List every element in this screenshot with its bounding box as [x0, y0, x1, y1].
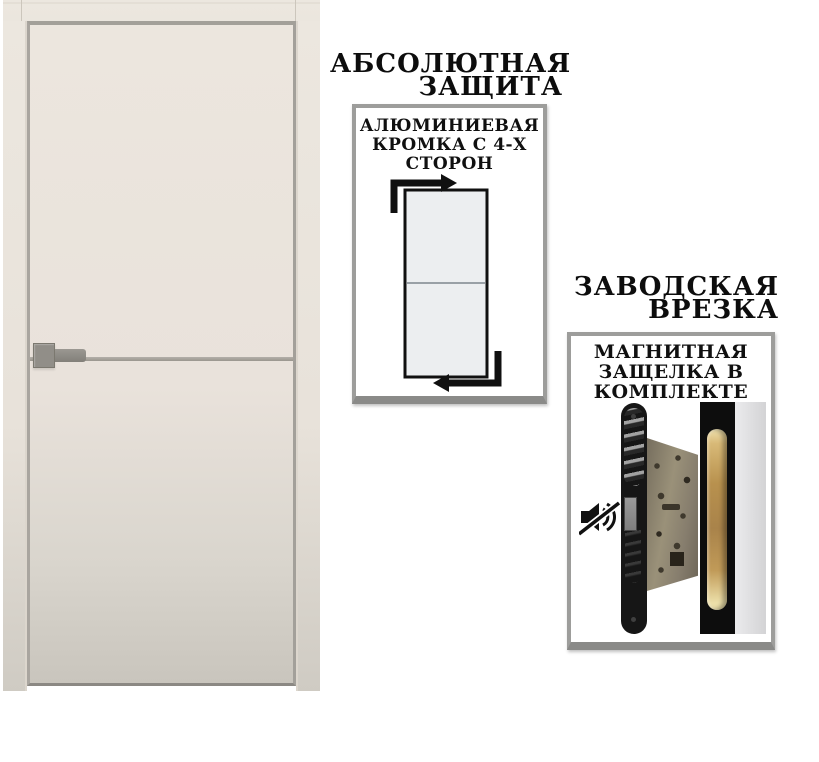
mute-icon — [579, 497, 623, 537]
door-frame-left-jamb — [3, 21, 27, 691]
caption-line: АЛЮМИНИЕВАЯ — [356, 117, 543, 136]
edge-feature-panel: АЛЮМИНИЕВАЯ КРОМКА С 4-Х СТОРОН — [352, 104, 547, 404]
title-line: ВРЕЗКА — [565, 299, 779, 322]
frame-joint — [295, 0, 296, 21]
latch-feature-title: ЗАВОДСКАЯ ВРЕЗКА — [565, 276, 779, 322]
edge-feature-title: АБСОЛЮТНАЯ ЗАЩИТА — [330, 53, 563, 99]
magnetic-latch-window — [624, 497, 637, 531]
caption-line: МАГНИТНАЯ — [571, 342, 771, 362]
edge-feature-caption: АЛЮМИНИЕВАЯ КРОМКА С 4-Х СТОРОН — [356, 108, 543, 174]
caption-line: ЗАЩЕЛКА В — [571, 362, 771, 382]
brass-insert — [707, 429, 727, 610]
caption-line: СТОРОН — [356, 155, 543, 174]
lock-body — [647, 438, 698, 591]
door-edge-strip — [735, 402, 766, 634]
screw-hole — [631, 617, 636, 622]
latch-feature-caption: МАГНИТНАЯ ЗАЩЕЛКА В КОМПЛЕКТЕ — [571, 336, 771, 402]
door-photo — [3, 0, 320, 691]
caption-line: КРОМКА С 4-Х — [356, 136, 543, 155]
door-handle-base — [33, 343, 55, 368]
frame-joint — [21, 0, 22, 21]
lock-slot — [662, 504, 680, 510]
caption-line: КОМПЛЕКТЕ — [571, 382, 771, 402]
door-handle-lever — [55, 349, 86, 362]
door-frame-right-jamb — [296, 21, 320, 691]
latch-feature-panel: МАГНИТНАЯ ЗАЩЕЛКА В КОМПЛЕКТЕ — [567, 332, 775, 650]
title-line: ЗАЩИТА — [330, 76, 563, 99]
screw-hole — [631, 414, 636, 419]
door-frame-header — [3, 0, 320, 22]
door-product-card: АБСОЛЮТНАЯ ЗАЩИТА АЛЮМИНИЕВАЯ КРОМКА С 4… — [0, 0, 819, 762]
lock-slot — [670, 552, 684, 566]
